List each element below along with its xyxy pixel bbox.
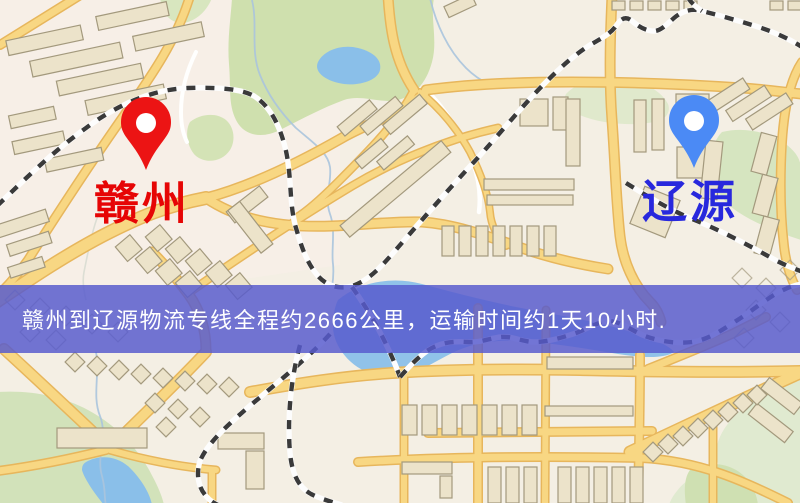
route-info-text: 赣州到辽源物流专线全程约2666公里，运输时间约1天10小时. bbox=[22, 303, 666, 335]
route-info-banner: 赣州到辽源物流专线全程约2666公里，运输时间约1天10小时. bbox=[0, 285, 800, 353]
map-background bbox=[0, 0, 800, 503]
building-strip bbox=[442, 226, 556, 256]
logistics-route-map: 赣州 辽源 赣州到辽源物流专线全程约2666公里，运输时间约1天10小时. bbox=[0, 0, 800, 503]
destination-city-label: 辽源 bbox=[642, 180, 738, 225]
origin-city-label: 赣州 bbox=[94, 182, 190, 227]
